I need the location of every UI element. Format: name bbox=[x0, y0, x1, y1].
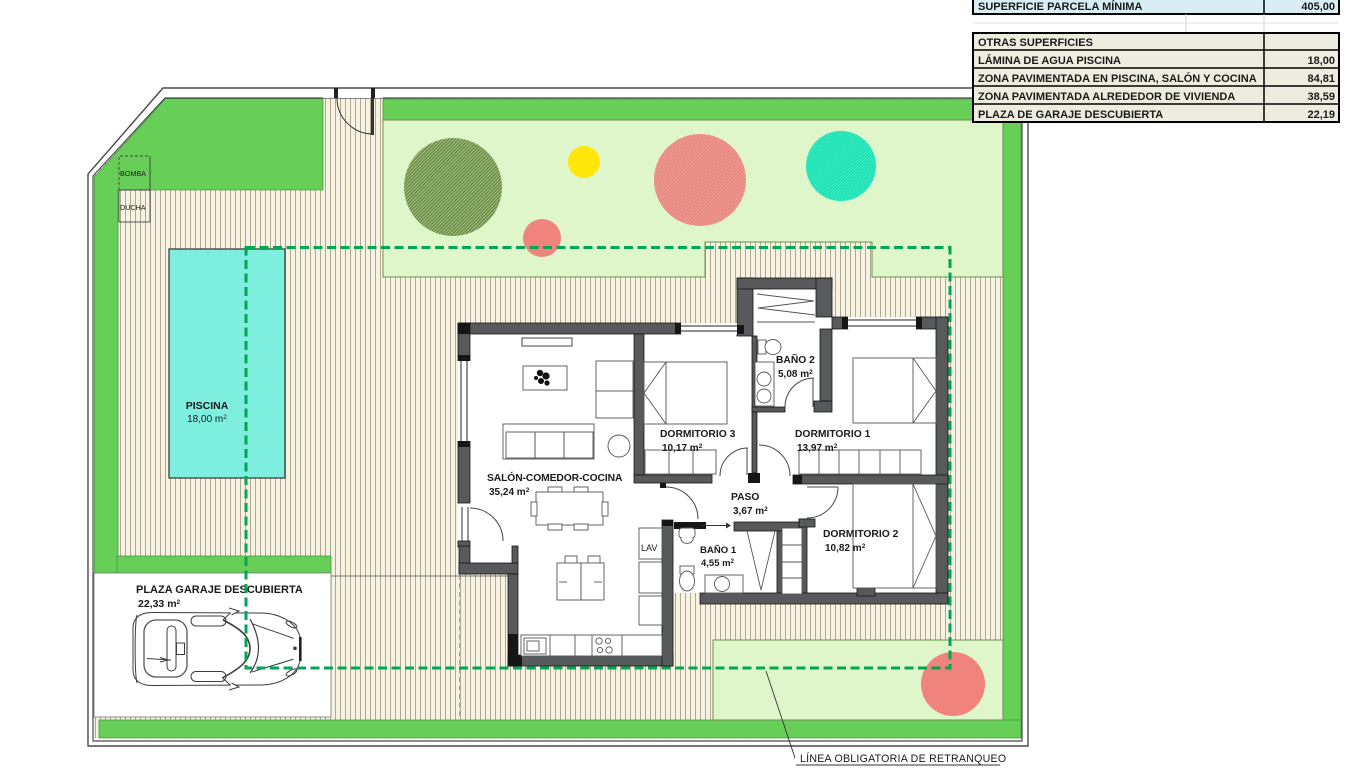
svg-text:22,33 m2: 22,33 m2 bbox=[138, 598, 181, 610]
svg-text:PLAZA DE GARAJE DESCUBIERTA: PLAZA DE GARAJE DESCUBIERTA bbox=[978, 109, 1163, 121]
svg-text:DORMITORIO 3: DORMITORIO 3 bbox=[660, 429, 736, 440]
svg-text:22,19: 22,19 bbox=[1307, 109, 1335, 121]
svg-text:LÁMINA DE AGUA PISCINA: LÁMINA DE AGUA PISCINA bbox=[978, 54, 1121, 67]
svg-text:DORMITORIO 2: DORMITORIO 2 bbox=[823, 529, 899, 540]
svg-text:405,00: 405,00 bbox=[1301, 1, 1335, 13]
svg-text:OTRAS SUPERFICIES: OTRAS SUPERFICIES bbox=[978, 37, 1093, 49]
svg-text:PASO: PASO bbox=[731, 492, 759, 503]
svg-text:4,55 m2: 4,55 m2 bbox=[701, 558, 735, 569]
svg-text:LAV: LAV bbox=[641, 543, 657, 553]
svg-text:10,17 m2: 10,17 m2 bbox=[662, 443, 703, 454]
svg-text:84,81: 84,81 bbox=[1307, 73, 1335, 85]
svg-text:18,00 m2: 18,00 m2 bbox=[187, 414, 227, 425]
svg-text:18,00: 18,00 bbox=[1307, 55, 1335, 67]
svg-text:35,24 m2: 35,24 m2 bbox=[489, 487, 530, 498]
svg-text:10,82 m2: 10,82 m2 bbox=[825, 543, 866, 554]
svg-text:ZONA PAVIMENTADA ALREDEDOR DE: ZONA PAVIMENTADA ALREDEDOR DE VIVIENDA bbox=[978, 91, 1235, 103]
svg-text:38,59: 38,59 bbox=[1307, 91, 1335, 103]
svg-text:SUPERFICIE PARCELA MÍNIMA: SUPERFICIE PARCELA MÍNIMA bbox=[978, 0, 1142, 13]
svg-text:PLAZA GARAJE DESCUBIERTA: PLAZA GARAJE DESCUBIERTA bbox=[136, 584, 303, 596]
svg-text:BAÑO 2: BAÑO 2 bbox=[776, 353, 815, 366]
svg-text:SALÓN-COMEDOR-COCINA: SALÓN-COMEDOR-COCINA bbox=[487, 471, 623, 484]
svg-text:BOMBA: BOMBA bbox=[120, 169, 146, 178]
svg-text:PISCINA: PISCINA bbox=[186, 400, 229, 412]
svg-text:DORMITORIO 1: DORMITORIO 1 bbox=[795, 429, 871, 440]
svg-text:13,97 m2: 13,97 m2 bbox=[797, 443, 838, 454]
svg-text:DUCHA: DUCHA bbox=[120, 203, 146, 212]
svg-text:BAÑO 1: BAÑO 1 bbox=[700, 545, 737, 556]
svg-text:5,08 m2: 5,08 m2 bbox=[778, 369, 813, 380]
svg-text:ZONA PAVIMENTADA EN PISCINA, S: ZONA PAVIMENTADA EN PISCINA, SALÓN Y COC… bbox=[978, 72, 1257, 85]
svg-text:LÍNEA OBLIGATORIA DE RETRANQUE: LÍNEA OBLIGATORIA DE RETRANQUEO bbox=[800, 752, 1006, 765]
svg-text:3,67 m2: 3,67 m2 bbox=[733, 506, 768, 517]
